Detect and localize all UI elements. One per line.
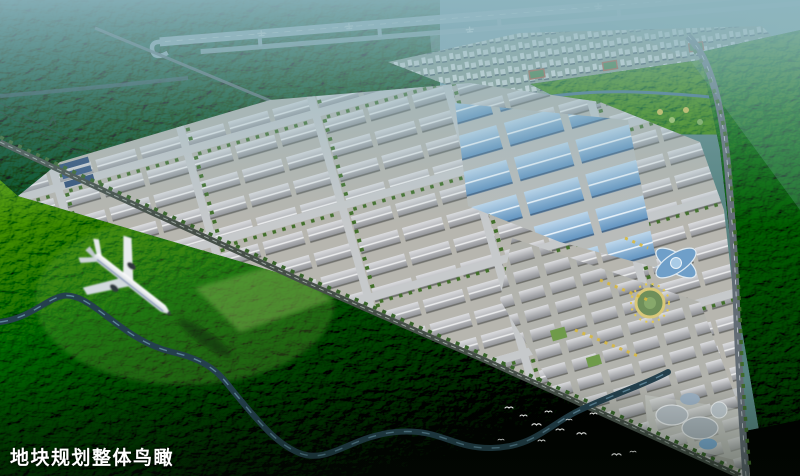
caption: 地块规划整体鸟瞰 bbox=[10, 443, 174, 470]
scene-svg bbox=[0, 0, 800, 476]
aerial-rendering: 地块规划整体鸟瞰 bbox=[0, 0, 800, 476]
butterfly-dome bbox=[671, 258, 682, 269]
